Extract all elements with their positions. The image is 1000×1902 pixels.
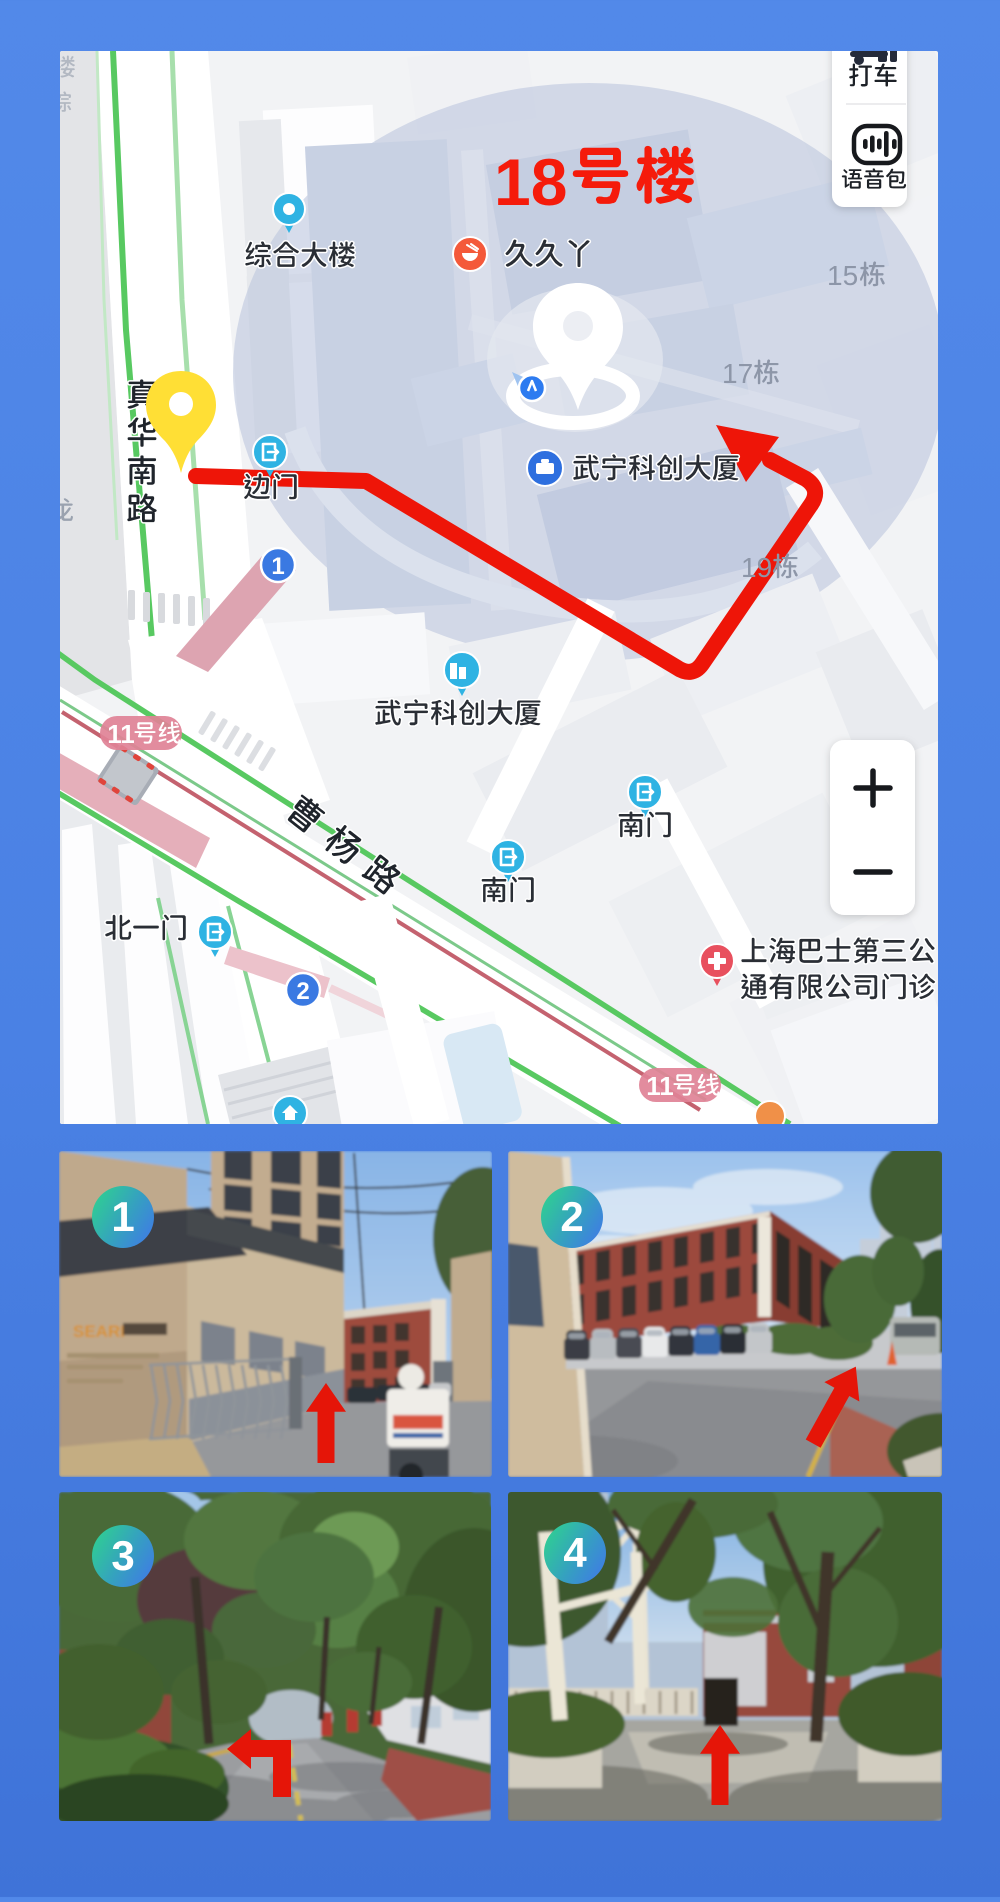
svg-text:18: 18 — [494, 145, 567, 219]
svg-text:11: 11 — [646, 1071, 674, 1101]
svg-text:19: 19 — [741, 552, 772, 583]
svg-text:4: 4 — [563, 1529, 587, 1576]
svg-text:1: 1 — [111, 1193, 134, 1240]
svg-text:2: 2 — [296, 978, 309, 1005]
svg-text:2: 2 — [560, 1193, 583, 1240]
svg-text:1: 1 — [271, 553, 284, 580]
svg-text:3: 3 — [111, 1532, 134, 1579]
svg-text:11: 11 — [107, 719, 135, 749]
svg-text:15: 15 — [827, 260, 858, 291]
svg-text:17: 17 — [722, 358, 753, 389]
svg-text:SEARI: SEARI — [73, 1322, 125, 1341]
